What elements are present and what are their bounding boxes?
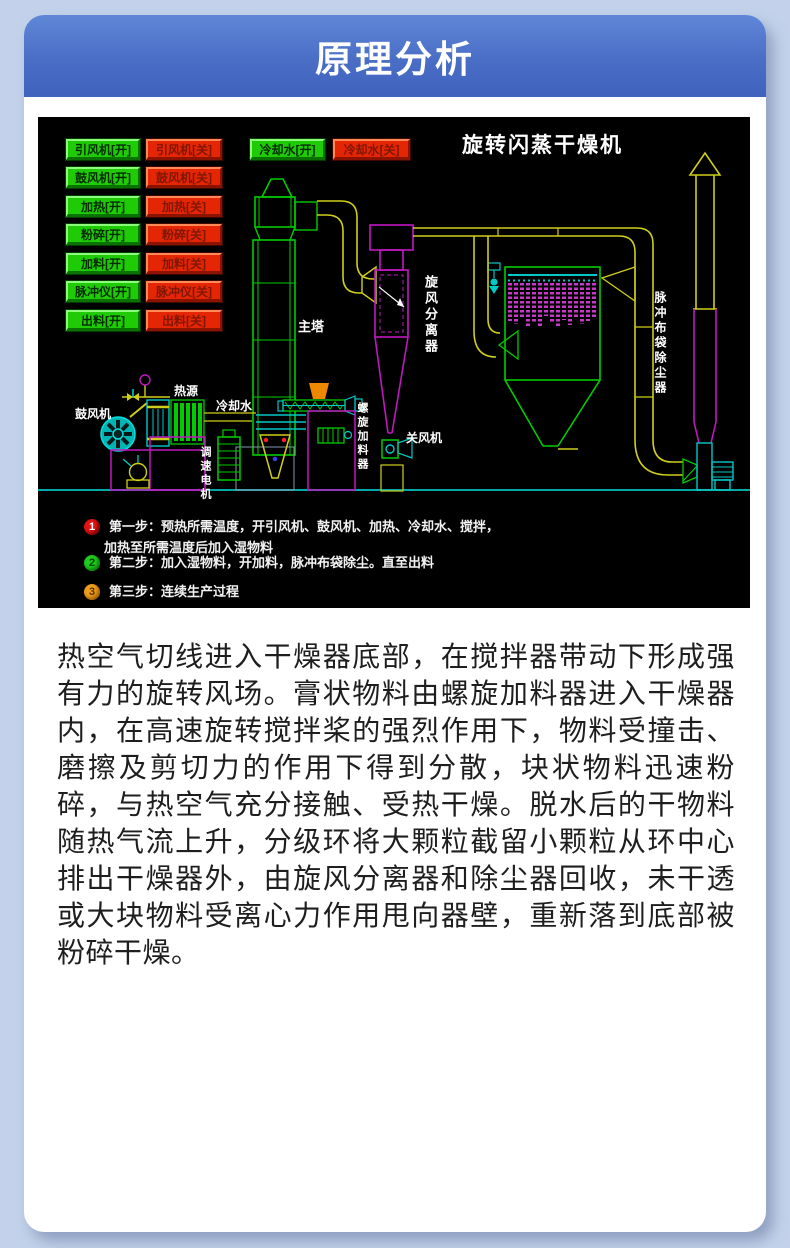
step-1: 1 第一步：预热所需温度，开引风机、鼓风机、加热、冷却水、搅拌，	[84, 519, 499, 535]
diagram-title: 旋转闪蒸干燥机	[462, 129, 662, 159]
btn-discharge-off[interactable]: 出料[关]	[146, 310, 222, 331]
btn-induced-fan-off[interactable]: 引风机[关]	[146, 139, 222, 160]
step-1-badge: 1	[84, 519, 100, 535]
btn-feeding-off[interactable]: 加料[关]	[146, 253, 222, 274]
btn-discharge-on[interactable]: 出料[开]	[66, 310, 140, 331]
btn-heating-off[interactable]: 加热[关]	[146, 196, 222, 217]
scada-diagram: 旋转闪蒸干燥机 引风机[开] 鼓风机[开] 加热[开] 粉碎[开] 加料[开] …	[38, 117, 750, 608]
label-main-tower: 主塔	[298, 316, 324, 335]
btn-pulse-off[interactable]: 脉冲仪[关]	[146, 281, 222, 302]
content-card: 原理分析	[24, 15, 766, 1232]
step-1-text: 第一步：预热所需温度，开引风机、鼓风机、加热、冷却水、搅拌，	[109, 519, 499, 535]
btn-blower-off[interactable]: 鼓风机[关]	[146, 167, 222, 188]
step-3-badge: 3	[84, 584, 100, 600]
step-1-text-line2: 加热至所需温度后加入湿物料	[104, 537, 273, 556]
btn-cooling-water-off[interactable]: 冷却水[关]	[333, 139, 410, 160]
btn-crushing-on[interactable]: 粉碎[开]	[66, 224, 140, 245]
btn-cooling-water-on[interactable]: 冷却水[开]	[250, 139, 325, 160]
label-heat-source: 热源	[174, 382, 198, 399]
btn-crushing-off[interactable]: 粉碎[关]	[146, 224, 222, 245]
label-cyclone: 旋风分离器	[424, 275, 437, 355]
step-2-text: 第二步：加入湿物料，开加料，脉冲布袋除尘。直至出料	[109, 555, 434, 571]
btn-feeding-on[interactable]: 加料[开]	[66, 253, 140, 274]
step-2-badge: 2	[84, 555, 100, 571]
section-title: 原理分析	[315, 29, 475, 83]
step-3-text: 第三步：连续生产过程	[109, 584, 239, 600]
label-cooling-water: 冷却水	[216, 397, 252, 414]
step-3: 3 第三步：连续生产过程	[84, 584, 239, 600]
step-2: 2 第二步：加入湿物料，开加料，脉冲布袋除尘。直至出料	[84, 555, 434, 571]
btn-pulse-on[interactable]: 脉冲仪[开]	[66, 281, 140, 302]
description-paragraph: 热空气切线进入干燥器底部，在搅拌器带动下形成强有力的旋转风场。膏状物料由螺旋加料…	[57, 638, 735, 971]
label-speed-motor: 调速电机	[199, 446, 210, 502]
label-screw-feeder: 螺旋加料器	[356, 402, 367, 472]
btn-induced-fan-on[interactable]: 引风机[开]	[66, 139, 140, 160]
label-bag-filter: 脉冲布袋除尘器	[654, 291, 666, 396]
label-air-lock-fan: 关风机	[406, 429, 442, 446]
btn-heating-on[interactable]: 加热[开]	[66, 196, 140, 217]
btn-blower-on[interactable]: 鼓风机[开]	[66, 167, 140, 188]
label-blower: 鼓风机	[75, 405, 111, 422]
section-header: 原理分析	[24, 15, 766, 97]
